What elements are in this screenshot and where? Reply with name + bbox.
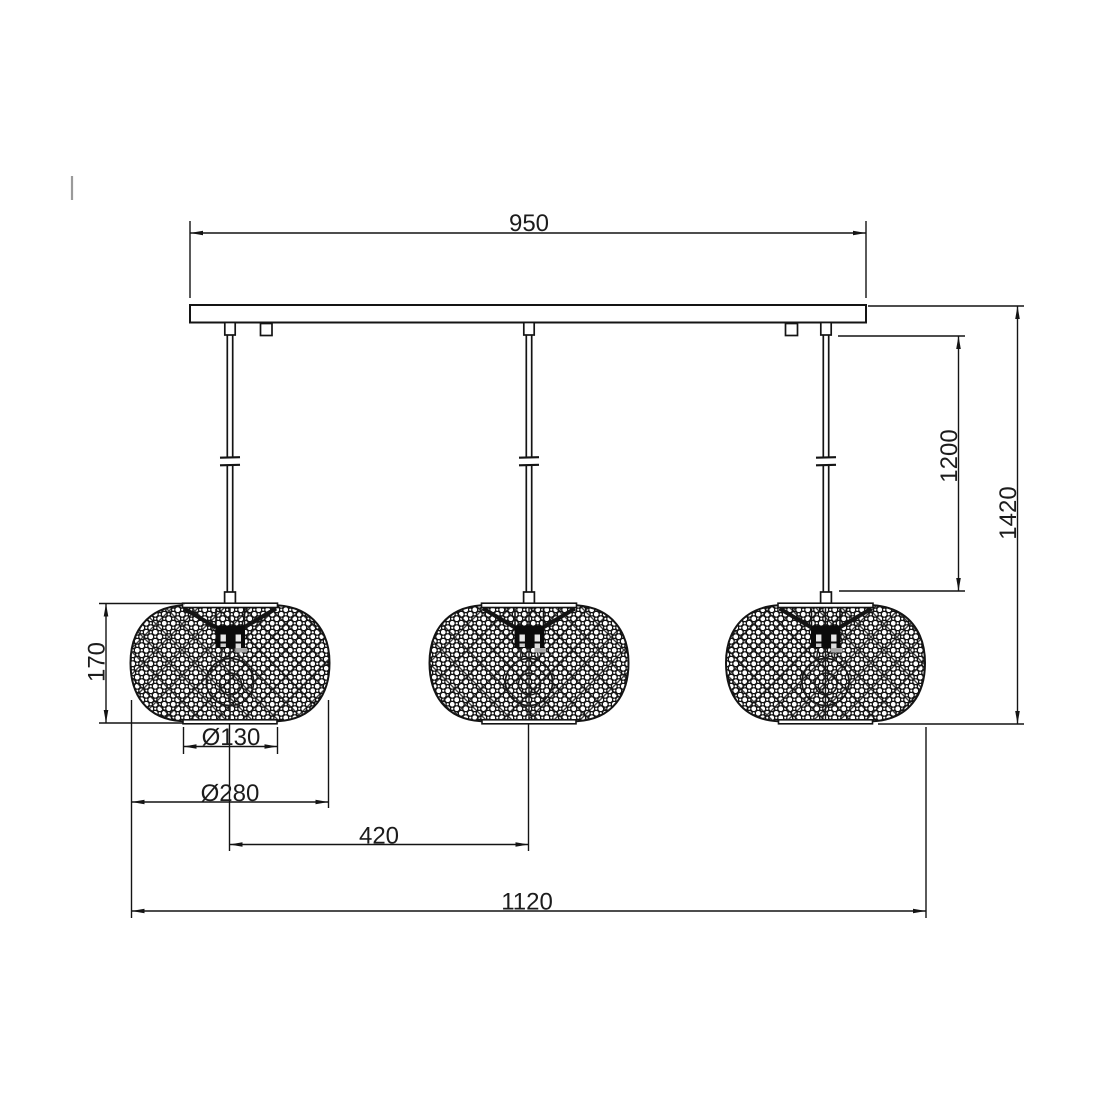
svg-text:420: 420 (359, 823, 399, 850)
svg-text:1120: 1120 (501, 889, 553, 916)
svg-text:1200: 1200 (936, 429, 963, 482)
svg-text:170: 170 (84, 642, 111, 682)
svg-text:1420: 1420 (995, 486, 1022, 539)
svg-text:Ø280: Ø280 (201, 780, 260, 807)
svg-text:Ø130: Ø130 (202, 724, 261, 751)
svg-text:950: 950 (509, 210, 549, 237)
